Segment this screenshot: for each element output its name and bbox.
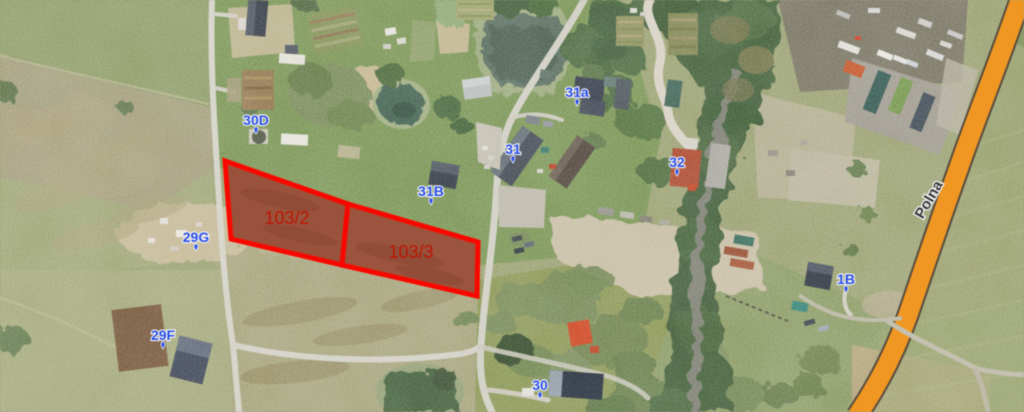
svg-text:31: 31 [505, 141, 521, 157]
svg-text:103/2: 103/2 [264, 208, 309, 228]
svg-text:29G: 29G [183, 229, 210, 245]
svg-text:29F: 29F [151, 327, 176, 343]
svg-text:103/3: 103/3 [388, 242, 433, 262]
svg-text:32: 32 [669, 154, 685, 170]
svg-text:1B: 1B [837, 271, 855, 287]
svg-text:31B: 31B [418, 183, 444, 199]
svg-text:30: 30 [532, 377, 548, 393]
svg-text:30D: 30D [243, 112, 269, 128]
svg-text:31a: 31a [565, 84, 589, 100]
